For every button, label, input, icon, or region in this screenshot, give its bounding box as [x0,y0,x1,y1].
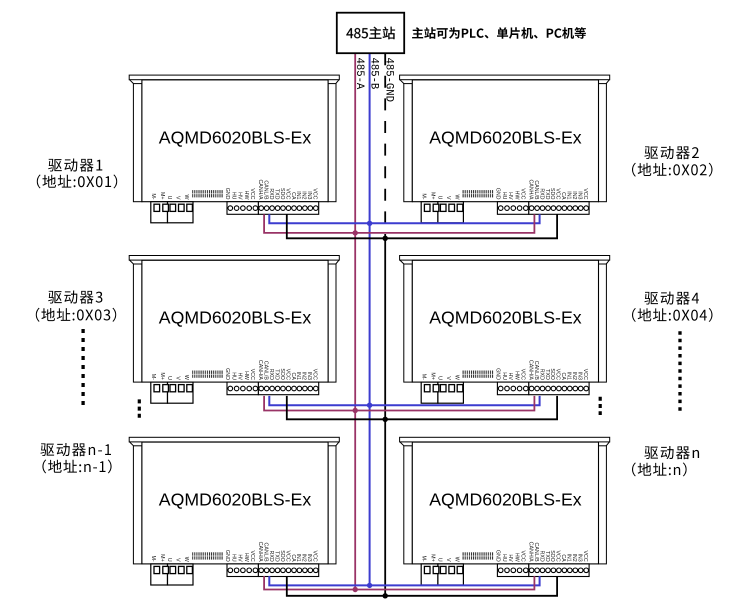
svg-text:485-GND: 485-GND [383,58,395,103]
svg-text:485-B: 485-B [368,58,380,90]
svg-text:485-A: 485-A [353,58,365,90]
